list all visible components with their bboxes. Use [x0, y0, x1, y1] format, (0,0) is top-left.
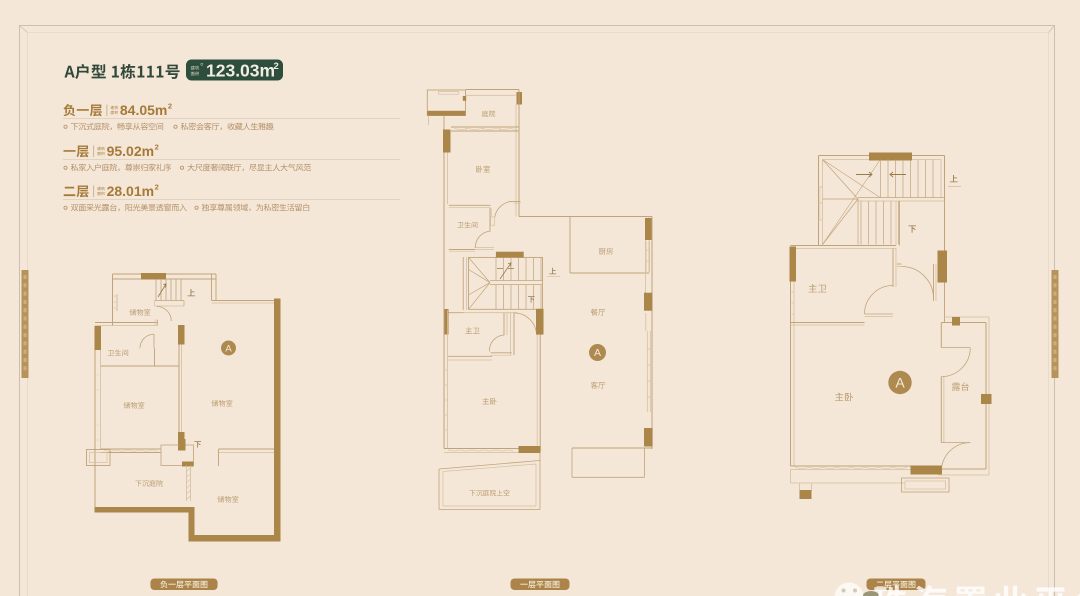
- svg-text:2: 2: [168, 102, 172, 111]
- svg-text:A: A: [225, 343, 232, 354]
- svg-text:2: 2: [155, 183, 159, 192]
- svg-text:A: A: [594, 347, 601, 359]
- svg-text:123.03m: 123.03m: [206, 61, 275, 81]
- svg-text:84.05m: 84.05m: [120, 102, 167, 118]
- svg-text:A: A: [895, 374, 905, 390]
- svg-text:2: 2: [274, 61, 279, 72]
- svg-text:2: 2: [155, 143, 159, 152]
- svg-text:95.02m: 95.02m: [107, 143, 154, 159]
- svg-text:28.01m: 28.01m: [107, 183, 154, 199]
